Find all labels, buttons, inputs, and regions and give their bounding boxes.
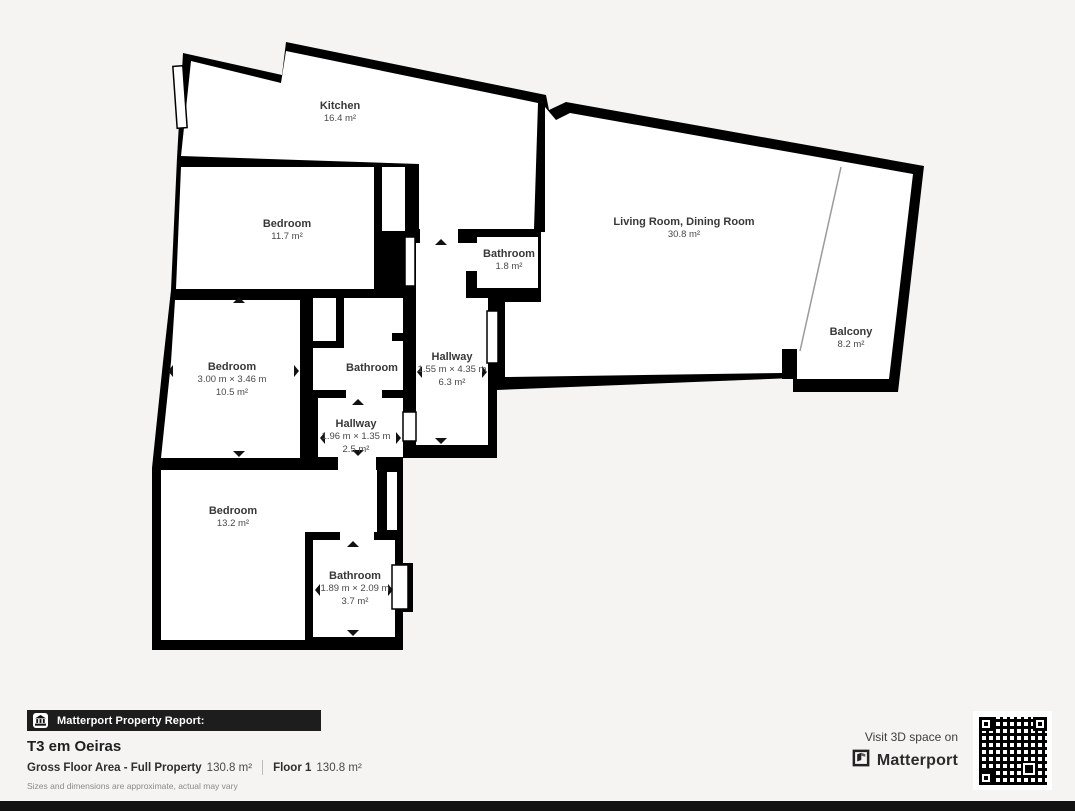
matterport-mark-icon	[851, 748, 871, 773]
wall-shower-nook-h	[313, 341, 344, 348]
qr-finder-icon	[1033, 717, 1047, 731]
qr-code	[979, 717, 1047, 785]
door-slot-bedroom-1	[405, 237, 415, 286]
property-title: T3 em Oeiras	[27, 738, 121, 755]
qr-finder-icon	[979, 717, 993, 731]
room-bathroom-3-floor	[313, 540, 395, 637]
room-living-balcony-floor	[505, 107, 913, 379]
door-gap-hallway-bedroom3	[338, 456, 376, 471]
floor-label: Floor 1	[273, 762, 311, 774]
room-bedroom-2-floor	[161, 300, 300, 458]
door-gap-bedroom3-bathroom3	[340, 531, 374, 541]
door-gap-bathroom-mid	[346, 390, 382, 399]
door-slot-hallway-living	[487, 311, 498, 363]
wall-shower-nook-v	[336, 298, 344, 348]
gross-floor-area-label: Gross Floor Area - Full Property	[27, 762, 202, 774]
room-bathroom-small-floor	[477, 237, 538, 288]
door-slot-hallways	[403, 412, 416, 441]
disclaimer-text: Sizes and dimensions are approximate, ac…	[27, 781, 238, 791]
visit-3d-text: Visit 3D space on	[846, 730, 958, 744]
building-icon	[33, 713, 48, 728]
wall-balcony-stub	[782, 349, 797, 379]
qr-finder-icon	[979, 771, 993, 785]
property-report-page: Kitchen 16.4 m² Bedroom 11.7 m² Bathroom…	[0, 0, 1075, 811]
qr-card	[973, 711, 1052, 790]
floor-value: 130.8 m²	[316, 762, 361, 774]
report-badge: Matterport Property Report:	[27, 710, 321, 731]
closet-floor	[382, 167, 405, 231]
stats-divider	[262, 760, 263, 775]
wall-bathroom-mid-corner	[392, 333, 410, 341]
door-gap-bathroom-small	[464, 243, 479, 271]
floor-plan	[0, 0, 1075, 811]
area-stats: Gross Floor Area - Full Property 130.8 m…	[27, 760, 362, 775]
qr-alignment-icon	[1023, 763, 1035, 775]
shaft-floor	[387, 472, 397, 530]
visit-3d-cta: Visit 3D space on Matterport	[846, 730, 958, 773]
gross-floor-area-value: 130.8 m²	[207, 762, 252, 774]
door-slot-bathroom-3	[392, 565, 408, 609]
matterport-wordmark: Matterport	[877, 752, 958, 770]
room-hallway-small-floor	[318, 398, 403, 457]
room-bedroom-1-floor	[176, 167, 374, 289]
matterport-lockup: Matterport	[846, 748, 958, 773]
report-badge-label: Matterport Property Report:	[57, 715, 205, 727]
bottom-bar	[0, 801, 1075, 811]
